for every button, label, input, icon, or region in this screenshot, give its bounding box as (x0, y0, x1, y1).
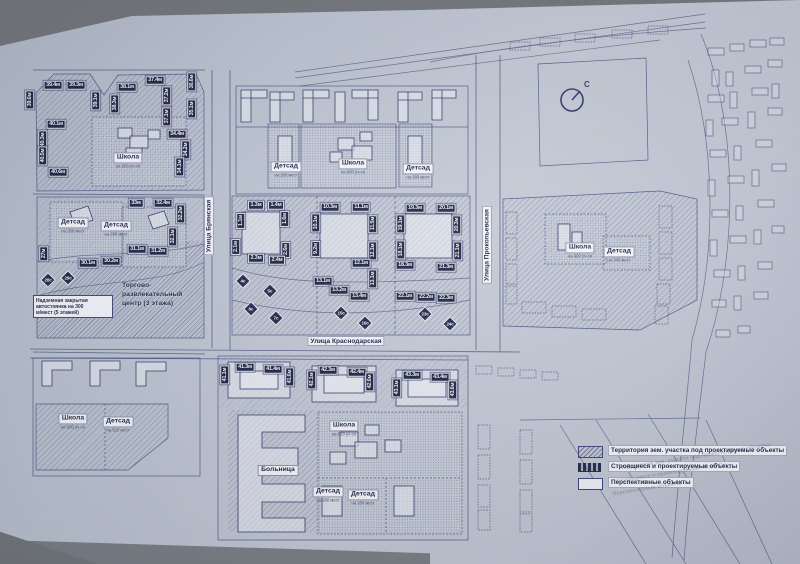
street-label-bryanskaya: Улица Брянская (204, 197, 214, 256)
map-photo: 39.4м39.3м39.1м38.1м38.3м37.4м37.2м36.6м… (0, 0, 800, 564)
street-name: Улица Краснодарская (310, 338, 381, 345)
facility-capacity: на 280 мест (101, 232, 132, 237)
facility-name: Школа (565, 242, 594, 253)
facility-name: Детсад (348, 489, 379, 500)
legend-swatch-dark-buildings (578, 463, 601, 472)
street-name: Улица Прокопьевская (484, 209, 491, 281)
facility-label: Школана 600 уч-ся (338, 151, 367, 174)
street-label-krasnodarskaya: Улица Краснодарская (307, 336, 384, 346)
facility-name: Детсад (101, 220, 132, 231)
facility-capacity: на 280 мест (58, 229, 89, 234)
facility-name: Школа (329, 420, 358, 431)
facility-capacity: на 280 мест (348, 501, 379, 506)
mall-label: Торгово- развлекательный центр (3 этажа) (122, 281, 182, 308)
facility-name: Детсад (313, 486, 344, 497)
facility-name: Детсад (604, 246, 635, 257)
facility-capacity: на 340 мест (604, 258, 635, 263)
facility-label: Детсадна 320 мест (103, 409, 134, 432)
facility-name: Больница (258, 465, 299, 476)
facility-capacity: на 600 уч-ся (113, 164, 142, 169)
facility-label: Школана 600 уч-ся (113, 145, 142, 168)
facility-capacity: на 600 уч-ся (329, 432, 358, 437)
facility-label: Детсадна 340 мест (604, 239, 635, 262)
facility-label: Школана 600 уч-ся (565, 235, 594, 258)
street-name: Улица Брянская (206, 200, 213, 253)
facility-capacity: на 600 уч-ся (58, 425, 87, 430)
mall-label-line: центр (3 этажа) (122, 299, 182, 308)
facility-capacity: на 600 уч-ся (338, 170, 367, 175)
parking-note: Надземная закрытая автостоянка на 300 м/… (33, 295, 113, 318)
facility-name: Детсад (58, 217, 89, 228)
facility-label: Детсадна 280 мест (271, 154, 302, 177)
legend-item: Перспективные объекты (578, 476, 796, 492)
facility-label: Детсадна 280 мест (101, 213, 132, 236)
facility-name: Детсад (103, 416, 134, 427)
facility-label: Школана 600 уч-ся (58, 406, 87, 429)
facility-name: Школа (338, 158, 367, 169)
compass-north-letter: С (584, 80, 590, 89)
facility-name: Школа (113, 152, 142, 163)
legend-swatch-hatch (578, 446, 603, 458)
facility-capacity: на 280 мест (403, 175, 434, 180)
facility-label: Детсадна 280 мест (313, 479, 344, 502)
mall-label-line: развлекательный (122, 290, 182, 299)
street-label-prokopyevskaya: Улица Прокопьевская (482, 206, 492, 284)
facility-label: Больница (258, 458, 299, 476)
facility-capacity: на 320 мест (103, 428, 134, 433)
parking-note-line: м/мест (5 этажей) (36, 310, 110, 316)
legend: Территория зем. участка под проектируемы… (578, 444, 796, 492)
mall-label-line: Торгово- (122, 281, 182, 290)
facility-label: Детсадна 280 мест (403, 156, 434, 179)
facility-label: Школана 600 уч-ся (329, 413, 358, 436)
facility-name: Детсад (403, 163, 434, 174)
facility-capacity: на 280 мест (313, 498, 344, 503)
facility-label: Детсадна 280 мест (58, 210, 89, 233)
facility-name: Школа (58, 413, 87, 424)
legend-swatch-outline (578, 478, 603, 490)
facility-capacity: на 600 уч-ся (565, 254, 594, 259)
compass-icon (552, 78, 598, 120)
compass: С (552, 78, 598, 120)
facility-name: Детсад (271, 161, 302, 172)
facility-capacity: на 280 мест (271, 173, 302, 178)
facility-label: Детсадна 280 мест (348, 482, 379, 505)
